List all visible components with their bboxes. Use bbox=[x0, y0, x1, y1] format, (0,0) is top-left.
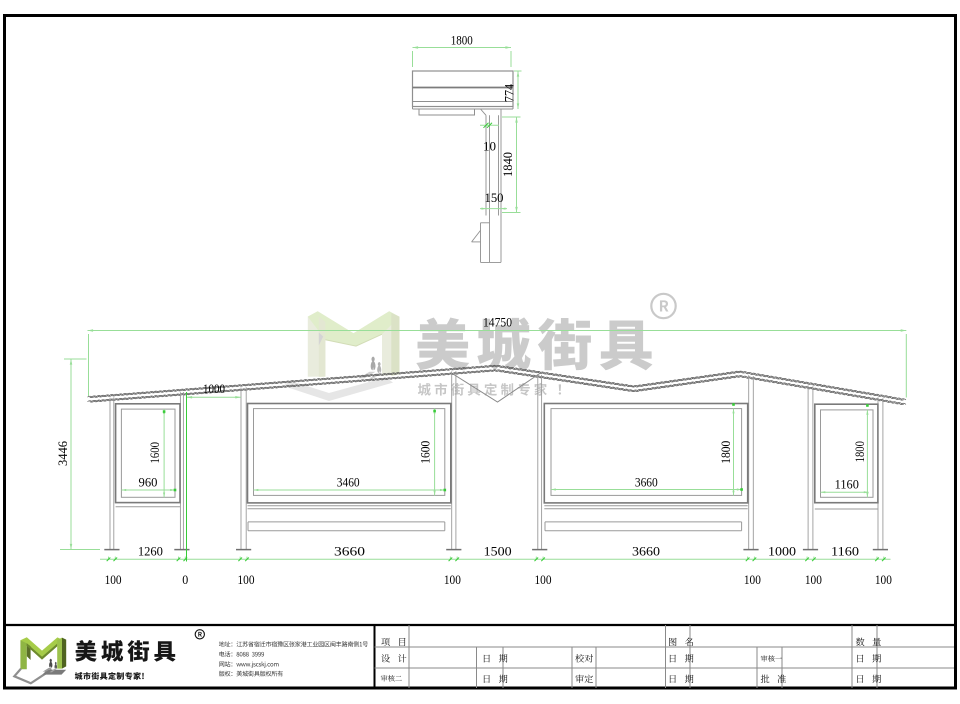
svg-text:100: 100 bbox=[875, 573, 892, 587]
svg-text:10: 10 bbox=[483, 140, 496, 154]
svg-text:1160: 1160 bbox=[831, 545, 859, 559]
svg-text:960: 960 bbox=[139, 476, 158, 490]
svg-text:1260: 1260 bbox=[138, 545, 163, 559]
svg-text:1840: 1840 bbox=[501, 152, 515, 177]
svg-text:3460: 3460 bbox=[337, 476, 360, 490]
svg-text:1800: 1800 bbox=[451, 34, 473, 48]
svg-text:1800: 1800 bbox=[719, 441, 733, 464]
svg-text:1160: 1160 bbox=[835, 478, 859, 492]
svg-text:100: 100 bbox=[535, 573, 552, 587]
svg-text:1600: 1600 bbox=[418, 441, 432, 464]
svg-text:1800: 1800 bbox=[853, 441, 867, 462]
svg-text:774: 774 bbox=[503, 84, 517, 102]
svg-text:3660: 3660 bbox=[635, 476, 658, 490]
svg-text:14750: 14750 bbox=[483, 316, 512, 330]
svg-text:1600: 1600 bbox=[148, 442, 162, 464]
svg-text:3660: 3660 bbox=[334, 545, 365, 559]
svg-text:3660: 3660 bbox=[632, 545, 660, 559]
svg-text:100: 100 bbox=[238, 573, 255, 587]
svg-text:1000: 1000 bbox=[203, 382, 225, 396]
svg-text:100: 100 bbox=[805, 573, 822, 587]
svg-text:100: 100 bbox=[444, 573, 461, 587]
svg-text:0: 0 bbox=[182, 573, 188, 587]
svg-text:100: 100 bbox=[105, 573, 122, 587]
svg-text:150: 150 bbox=[485, 191, 504, 205]
svg-text:3446: 3446 bbox=[56, 441, 70, 466]
svg-text:100: 100 bbox=[744, 573, 761, 587]
svg-text:1000: 1000 bbox=[768, 545, 796, 559]
svg-text:1500: 1500 bbox=[484, 545, 512, 559]
